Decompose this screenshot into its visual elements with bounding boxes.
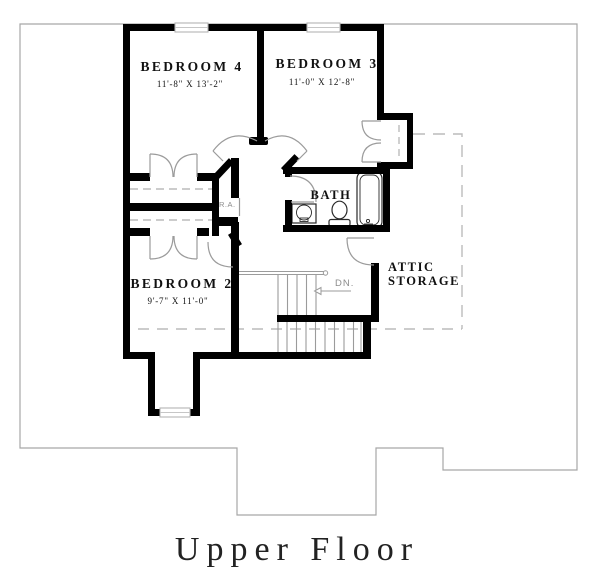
bedroom2-label: BEDROOM 2 xyxy=(131,276,234,291)
bedroom2-closet-doors xyxy=(150,236,197,259)
attic-storage-door xyxy=(347,238,374,265)
stair-treads-lower-run xyxy=(278,322,361,352)
bedroom2-door xyxy=(208,242,233,267)
roof-outline xyxy=(20,24,577,515)
stair-railing xyxy=(239,271,328,275)
vanity-sink xyxy=(292,204,316,223)
attic-storage-label-line1: ATTIC xyxy=(388,260,435,274)
bedroom3-dims: 11'-0" X 12'-8" xyxy=(289,77,355,87)
bedroom2-bay-window xyxy=(160,408,190,417)
floor-plan-drawing: BEDROOM 4 11'-8" X 13'-2" BEDROOM 3 11'-… xyxy=(0,0,600,576)
bedroom4-dims: 11'-8" X 13'-2" xyxy=(157,79,223,89)
bedroom3-window xyxy=(307,23,340,32)
bedroom3-hall-door xyxy=(265,136,307,161)
bedroom3-label: BEDROOM 3 xyxy=(276,56,379,71)
floor-plan-page: BEDROOM 4 11'-8" X 13'-2" BEDROOM 3 11'-… xyxy=(0,0,600,576)
bedroom4-closet-doors xyxy=(150,154,197,177)
bath-label: BATH xyxy=(311,188,352,202)
bedroom4-label: BEDROOM 4 xyxy=(141,59,244,74)
bedroom3-closet-bifold-doors xyxy=(362,121,381,162)
toilet xyxy=(329,201,350,226)
plan-title: Upper Floor xyxy=(175,531,419,568)
down-label: DN. xyxy=(335,278,354,289)
bedroom2-dims: 9'-7" X 11'-0" xyxy=(148,296,209,306)
return-air-label: R.A. xyxy=(219,200,236,209)
bathtub xyxy=(357,172,382,229)
attic-boundary-dashed-line xyxy=(413,134,462,329)
attic-storage-label-line2: STORAGE xyxy=(388,274,460,288)
bedroom4-window xyxy=(175,23,208,32)
stair-treads-upper-run xyxy=(278,275,316,315)
